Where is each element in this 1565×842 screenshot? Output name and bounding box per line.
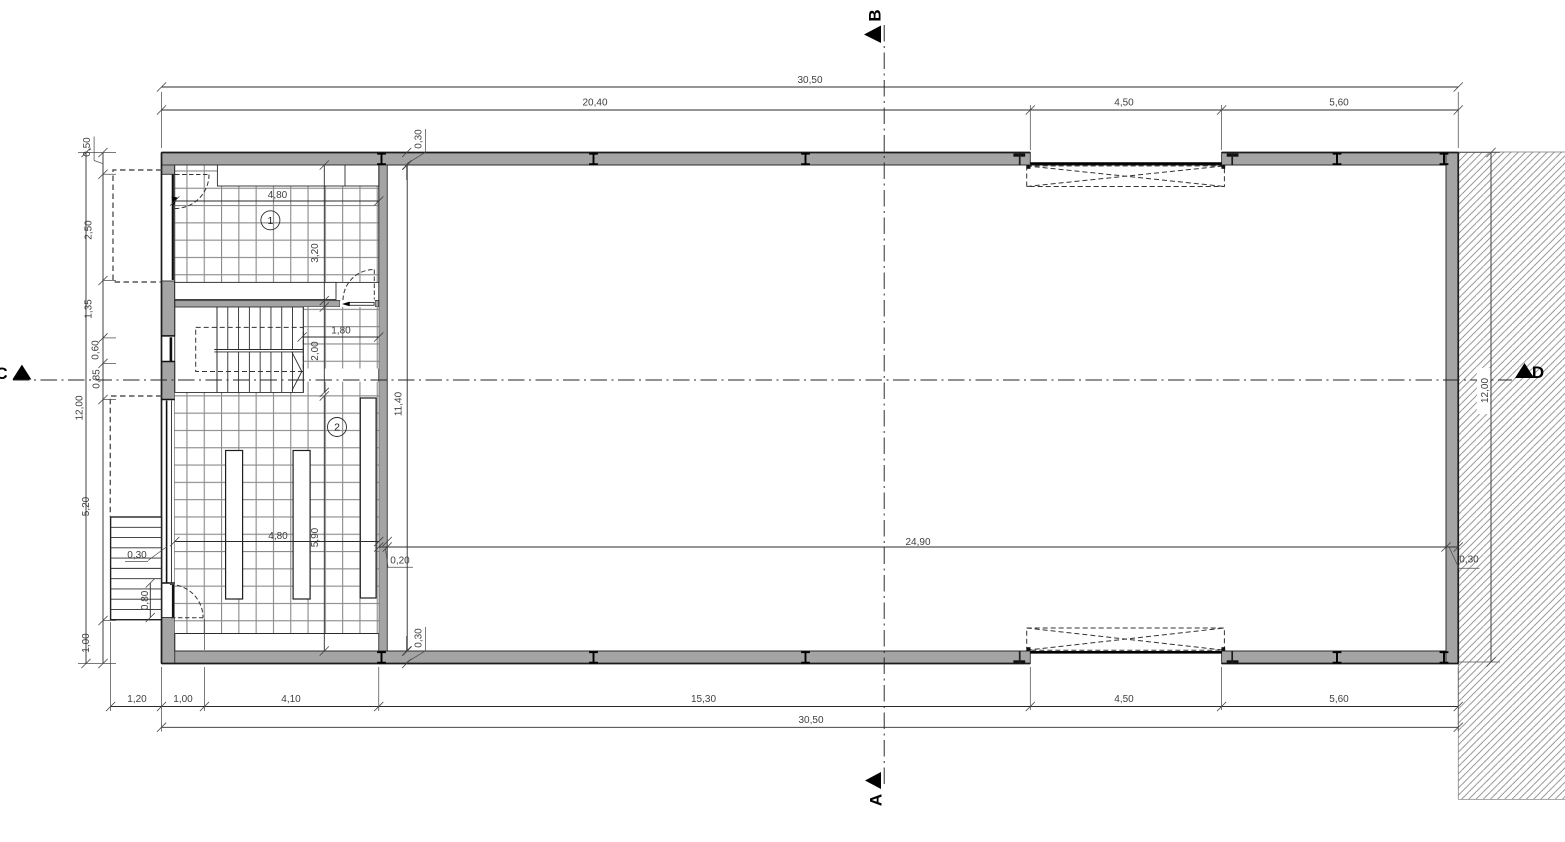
svg-text:0,85: 0,85 xyxy=(92,369,103,389)
svg-text:D: D xyxy=(1532,363,1544,382)
svg-text:1: 1 xyxy=(267,215,273,227)
svg-text:4,10: 4,10 xyxy=(281,694,301,705)
svg-text:1,80: 1,80 xyxy=(331,326,351,337)
svg-text:2: 2 xyxy=(334,422,340,434)
svg-text:5,20: 5,20 xyxy=(81,496,92,516)
svg-text:4,50: 4,50 xyxy=(1114,98,1134,109)
svg-text:4,50: 4,50 xyxy=(1114,694,1134,705)
svg-text:2,50: 2,50 xyxy=(84,220,95,240)
svg-text:11,40: 11,40 xyxy=(394,391,405,416)
svg-text:C: C xyxy=(0,364,8,383)
svg-text:4,80: 4,80 xyxy=(268,190,288,201)
svg-text:1,00: 1,00 xyxy=(81,633,92,653)
svg-text:1,00: 1,00 xyxy=(173,694,193,705)
svg-text:3,20: 3,20 xyxy=(310,243,321,263)
svg-text:12,00: 12,00 xyxy=(75,395,86,420)
svg-text:B: B xyxy=(866,9,885,21)
svg-text:4,80: 4,80 xyxy=(268,531,288,542)
svg-text:5,60: 5,60 xyxy=(1329,98,1349,109)
svg-text:5,60: 5,60 xyxy=(1329,694,1349,705)
svg-text:5,90: 5,90 xyxy=(310,527,321,547)
svg-text:A: A xyxy=(867,794,886,806)
svg-text:0,60: 0,60 xyxy=(91,340,102,360)
svg-text:0,80: 0,80 xyxy=(140,590,151,610)
svg-text:30,50: 30,50 xyxy=(798,715,823,726)
svg-text:0,30: 0,30 xyxy=(414,628,425,648)
svg-text:0,30: 0,30 xyxy=(414,129,425,149)
svg-text:12,00: 12,00 xyxy=(1480,378,1491,403)
svg-text:0,30: 0,30 xyxy=(127,550,147,561)
svg-text:1,20: 1,20 xyxy=(127,694,147,705)
svg-text:15,30: 15,30 xyxy=(691,694,716,705)
svg-text:2,00: 2,00 xyxy=(310,341,321,361)
svg-text:0,30: 0,30 xyxy=(1459,555,1479,566)
svg-text:24,90: 24,90 xyxy=(905,537,930,548)
svg-text:20,40: 20,40 xyxy=(582,98,607,109)
svg-text:0,50: 0,50 xyxy=(82,137,93,157)
svg-text:30,50: 30,50 xyxy=(797,75,822,86)
svg-text:1,35: 1,35 xyxy=(84,299,95,319)
